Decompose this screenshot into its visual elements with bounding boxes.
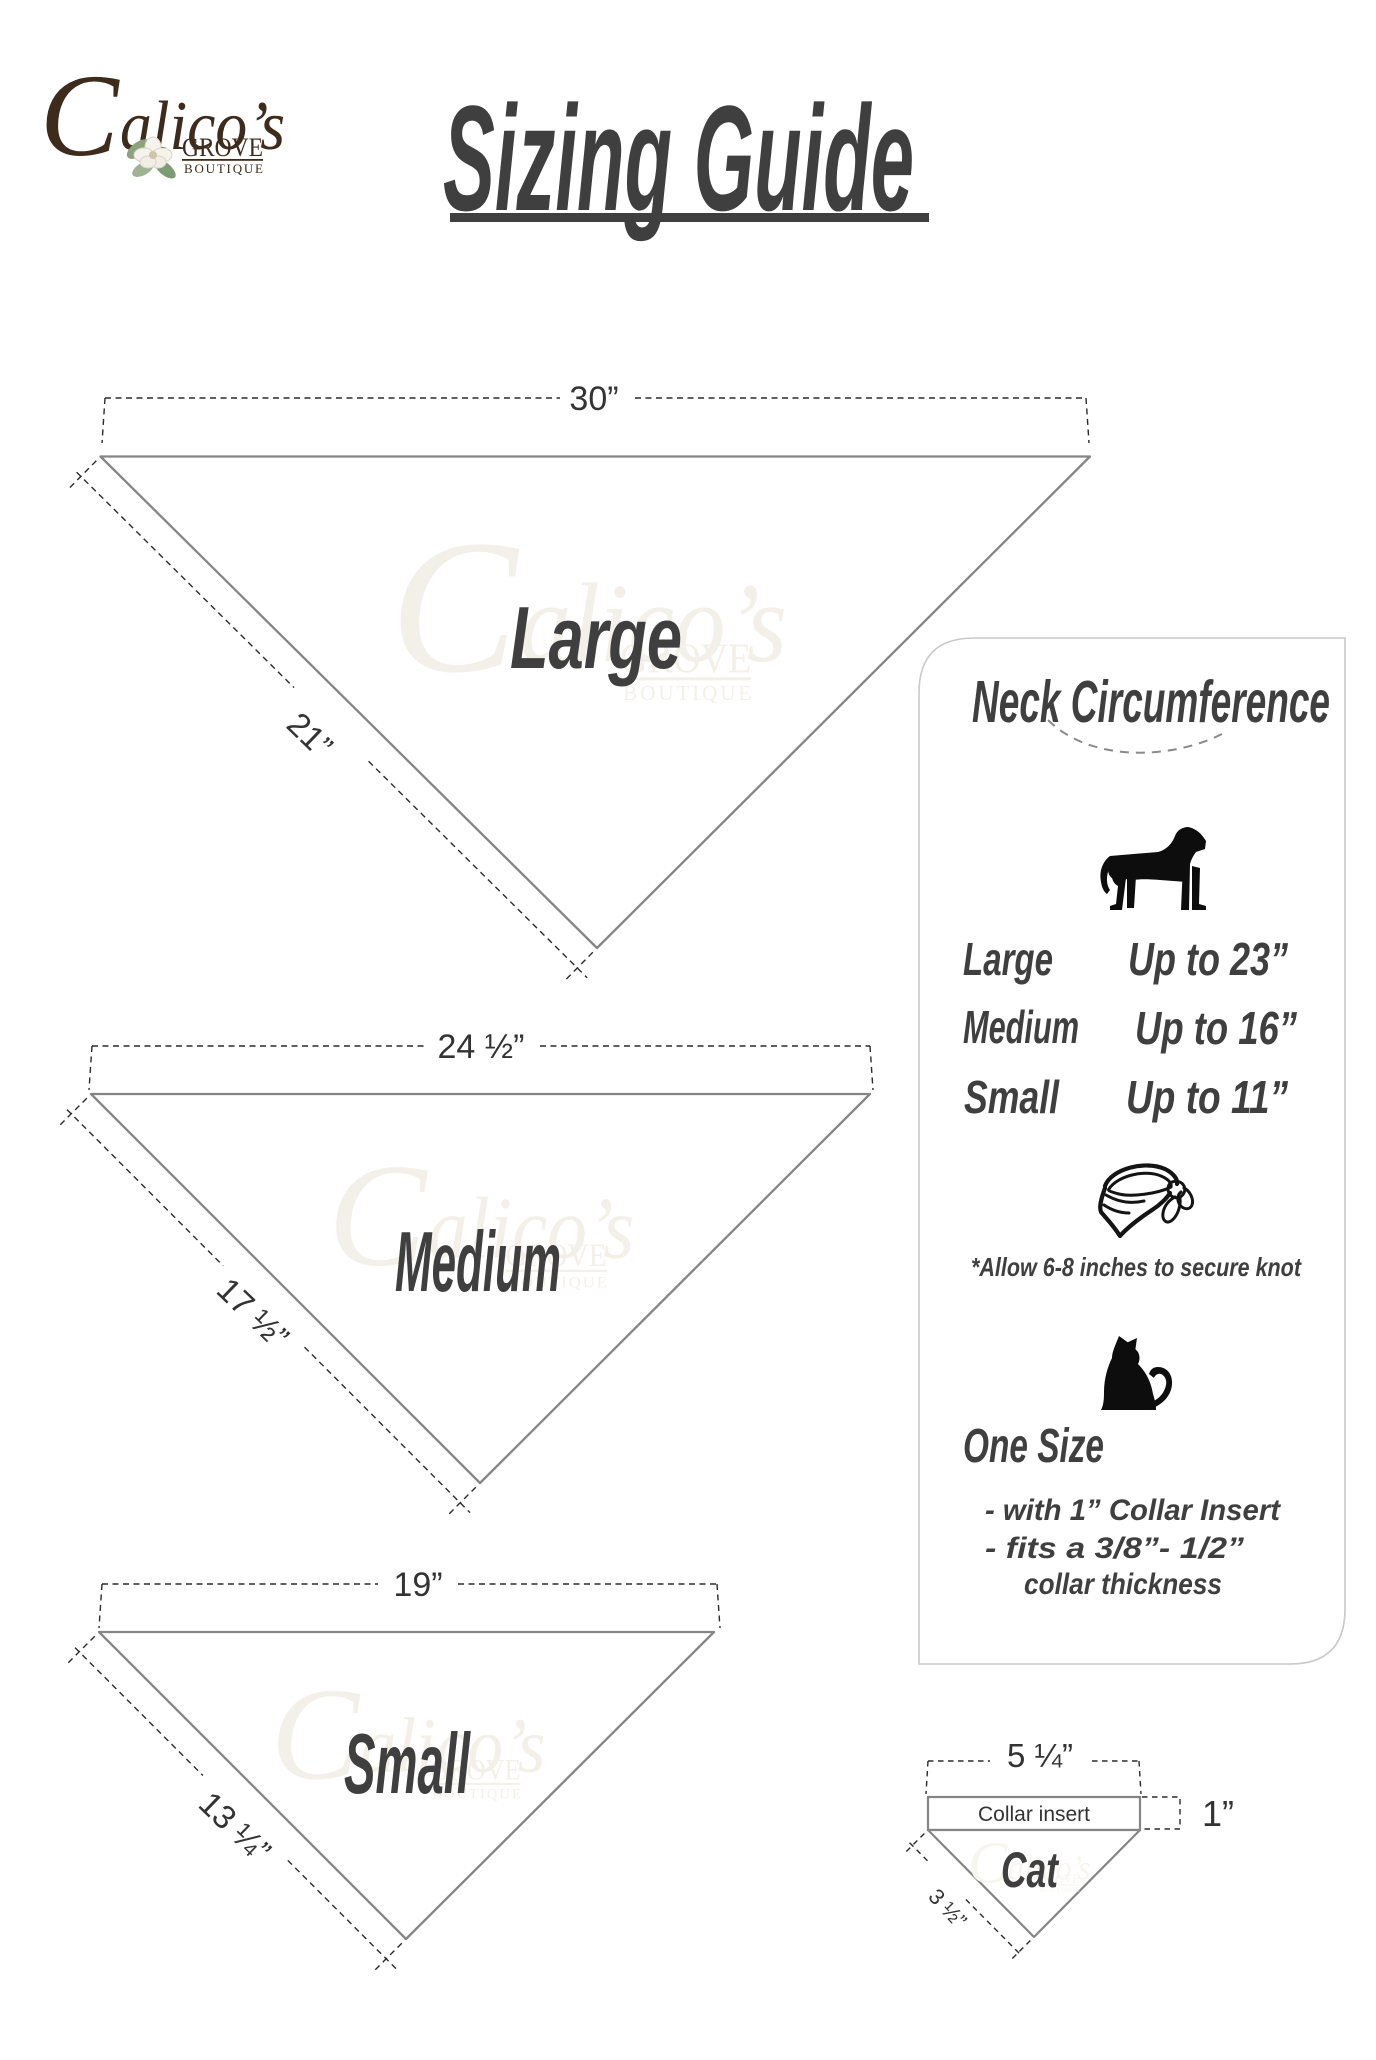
svg-text:collar thickness: collar thickness [1024, 1568, 1222, 1601]
svg-text:Up to 16”: Up to 16” [1135, 1002, 1297, 1054]
svg-text:1”: 1” [1202, 1793, 1234, 1834]
svg-text:Up to 11”: Up to 11” [1126, 1071, 1288, 1123]
svg-text:- fits a 3/8”- 1/2”: - fits a 3/8”- 1/2” [985, 1532, 1244, 1565]
svg-text:Medium: Medium [963, 1001, 1079, 1053]
svg-text:Collar insert: Collar insert [978, 1803, 1090, 1826]
svg-text:Large: Large [510, 589, 682, 687]
svg-text:Medium: Medium [395, 1213, 561, 1309]
svg-text:- with 1” Collar Insert: - with 1” Collar Insert [985, 1494, 1282, 1527]
svg-text:Up to 23”: Up to 23” [1128, 933, 1288, 985]
svg-text:Large: Large [963, 933, 1053, 985]
svg-text:Small: Small [344, 1715, 471, 1811]
svg-text:30”: 30” [569, 380, 618, 418]
svg-text:Cat: Cat [1001, 1842, 1059, 1898]
svg-text:5 ¼”: 5 ¼” [1007, 1737, 1073, 1774]
svg-text:One Size: One Size [963, 1420, 1104, 1473]
svg-text:Neck Circumference: Neck Circumference [972, 668, 1330, 735]
svg-text:19”: 19” [393, 1566, 442, 1604]
svg-text:*Allow 6-8 inches to secure kn: *Allow 6-8 inches to secure knot [971, 1252, 1302, 1282]
svg-text:Small: Small [964, 1071, 1060, 1123]
svg-text:24 ½”: 24 ½” [438, 1028, 525, 1066]
